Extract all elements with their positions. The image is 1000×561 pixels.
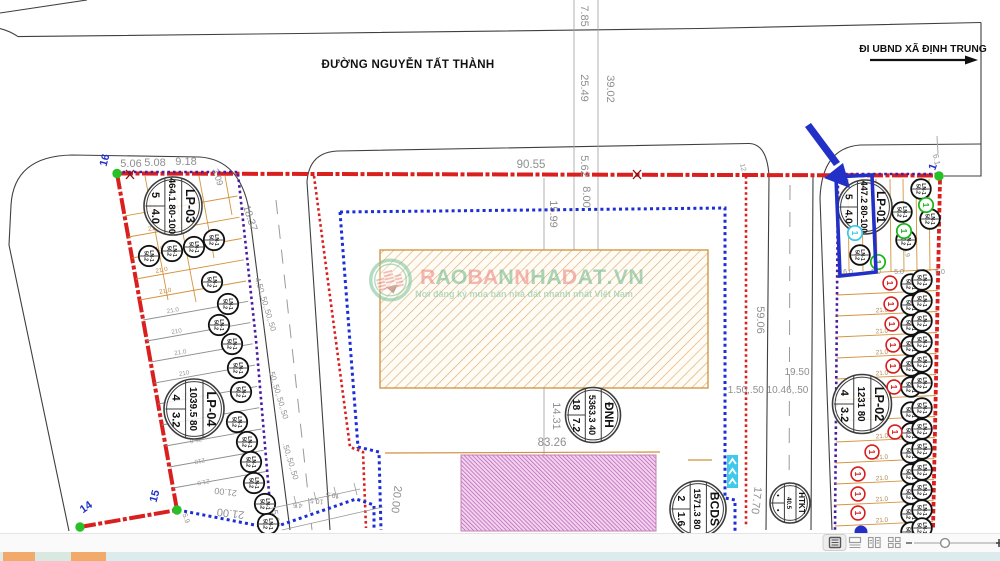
svg-text:50.2: 50.2 [915, 523, 921, 533]
svg-text:1: 1 [886, 302, 896, 307]
svg-text:HTKT: HTKT [797, 492, 806, 514]
svg-text:A: A [546, 265, 562, 289]
svg-text:H: H [530, 265, 546, 289]
svg-text:5363.3 40: 5363.3 40 [587, 395, 597, 435]
svg-text:1: 1 [899, 229, 909, 234]
svg-text:21.0: 21.0 [876, 433, 889, 441]
svg-text:4.0: 4.0 [149, 209, 161, 224]
svg-text:LP-02: LP-02 [872, 387, 887, 422]
svg-text:50.2: 50.2 [895, 207, 901, 217]
svg-text:1: 1 [921, 203, 931, 208]
svg-text:ĐƯỜNG NGUYỄN TẤT THÀNH: ĐƯỜNG NGUYỄN TẤT THÀNH [322, 58, 495, 71]
svg-text:9.18: 9.18 [175, 156, 196, 168]
svg-text:50.2: 50.2 [207, 235, 213, 245]
svg-text:50.2: 50.2 [904, 279, 910, 289]
svg-text:50.2: 50.2 [904, 320, 910, 330]
svg-text:21.0: 21.0 [876, 370, 889, 378]
svg-text:3.2: 3.2 [169, 412, 181, 428]
svg-text:5: 5 [149, 192, 161, 198]
svg-text:BCDS: BCDS [707, 492, 721, 526]
svg-text:O: O [451, 265, 468, 289]
svg-text:N: N [498, 265, 514, 289]
svg-text:50.2: 50.2 [904, 509, 910, 519]
svg-text:A: A [435, 265, 451, 289]
svg-text:50.2: 50.2 [915, 296, 921, 306]
svg-text:50.2: 50.2 [225, 339, 231, 349]
svg-text:50.2: 50.2 [231, 363, 237, 373]
svg-text:ĐNH: ĐNH [602, 402, 616, 428]
svg-text:1039.5 80: 1039.5 80 [187, 387, 198, 431]
svg-text:21.0: 21.0 [876, 349, 889, 357]
svg-text:1: 1 [853, 492, 863, 497]
svg-text:1.6: 1.6 [675, 512, 687, 527]
svg-text:5.0: 5.0 [894, 269, 904, 276]
svg-text:4: 4 [838, 390, 850, 397]
svg-text:50.2: 50.2 [221, 299, 227, 309]
svg-text:50.2: 50.2 [915, 444, 921, 454]
svg-text:15.99: 15.99 [547, 200, 559, 228]
svg-text:50.2: 50.2 [258, 499, 264, 509]
svg-text:A: A [578, 265, 594, 289]
svg-text:50.2: 50.2 [904, 382, 910, 392]
svg-text:50.2: 50.2 [915, 275, 921, 285]
svg-text:464.1 80-100: 464.1 80-100 [166, 178, 177, 234]
svg-text:T: T [593, 265, 606, 289]
svg-text:1: 1 [890, 430, 900, 435]
svg-text:7.2: 7.2 [570, 418, 581, 433]
svg-text:Nơi đăng ký mua bán nhà đất nh: Nơi đăng ký mua bán nhà đất nhanh nhất V… [415, 289, 633, 299]
svg-text:1: 1 [867, 450, 877, 455]
svg-text:50.2: 50.2 [234, 387, 240, 397]
svg-text:1: 1 [887, 322, 897, 327]
svg-text:D: D [562, 265, 578, 289]
svg-text:50.2: 50.2 [904, 469, 910, 479]
svg-text:ĐI UBND XÃ ĐỊNH TRUNG: ĐI UBND XÃ ĐỊNH TRUNG [859, 42, 987, 55]
svg-text:50.2: 50.2 [187, 242, 193, 252]
svg-text:18: 18 [570, 399, 581, 411]
svg-text:B: B [467, 265, 483, 289]
svg-text:A: A [483, 265, 499, 289]
svg-text:4: 4 [169, 394, 181, 401]
svg-text:LP-04: LP-04 [204, 391, 219, 427]
svg-text:1: 1 [888, 343, 898, 348]
svg-text:50.2: 50.2 [923, 214, 929, 224]
svg-text:50.2: 50.2 [904, 448, 910, 458]
svg-text:50.2: 50.2 [904, 361, 910, 371]
svg-text:1: 1 [888, 364, 898, 369]
svg-text:1: 1 [885, 281, 895, 286]
svg-text:50.2: 50.2 [247, 478, 253, 488]
svg-text:21.0: 21.0 [876, 475, 889, 483]
svg-text:39.02: 39.02 [604, 75, 616, 103]
svg-text:50.2: 50.2 [205, 277, 211, 287]
svg-text:59.06: 59.06 [754, 306, 766, 334]
svg-text:5.06: 5.06 [120, 158, 141, 170]
svg-text:5: 5 [843, 194, 854, 200]
svg-text:50.2: 50.2 [904, 341, 910, 351]
svg-text:50.2: 50.2 [914, 184, 920, 194]
svg-text:90.55: 90.55 [517, 159, 546, 171]
svg-text:50.2: 50.2 [915, 424, 921, 434]
svg-text:1: 1 [850, 231, 860, 236]
svg-text:2: 2 [675, 495, 687, 501]
svg-text:N: N [628, 265, 644, 289]
svg-text:50.2: 50.2 [915, 403, 921, 413]
svg-text:50.2: 50.2 [904, 428, 910, 438]
svg-text:50.2: 50.2 [261, 519, 267, 529]
svg-text:1: 1 [889, 385, 899, 390]
svg-text:50.2: 50.2 [915, 485, 921, 495]
svg-text:50.2: 50.2 [165, 246, 171, 256]
svg-text:50.2: 50.2 [230, 417, 236, 427]
svg-text:50.2: 50.2 [142, 251, 148, 261]
svg-text:50.2: 50.2 [904, 489, 910, 499]
svg-text:447.2 80-100: 447.2 80-100 [859, 181, 869, 234]
svg-text:50.2: 50.2 [915, 378, 921, 388]
svg-text:5.08: 5.08 [144, 157, 165, 169]
svg-text:1571.3 80: 1571.3 80 [692, 488, 702, 529]
svg-text:5.0: 5.0 [935, 269, 945, 276]
svg-text:R: R [420, 265, 436, 289]
svg-text:50.2: 50.2 [853, 250, 859, 260]
svg-text:V: V [614, 265, 629, 289]
svg-text:50.2: 50.2 [915, 316, 921, 326]
svg-text:50.2: 50.2 [244, 457, 250, 467]
svg-text:7.85: 7.85 [578, 5, 590, 26]
svg-text:LP-03: LP-03 [183, 189, 197, 223]
svg-text:1231 80: 1231 80 [855, 386, 866, 421]
svg-text:.: . [607, 265, 613, 289]
svg-text:4.0: 4.0 [843, 210, 854, 224]
svg-text:50.2: 50.2 [915, 465, 921, 475]
svg-text:50.2: 50.2 [904, 407, 910, 417]
svg-text:LP-01: LP-01 [874, 191, 887, 223]
svg-text:83.26: 83.26 [538, 437, 567, 449]
svg-text:5.62: 5.62 [578, 155, 590, 176]
svg-text:3.2: 3.2 [838, 407, 850, 422]
svg-text:50.2: 50.2 [915, 337, 921, 347]
svg-text:8.00: 8.00 [580, 186, 592, 207]
svg-text:N: N [514, 265, 530, 289]
svg-text:21.0: 21.0 [876, 496, 889, 504]
svg-text:19.50: 19.50 [784, 367, 809, 378]
svg-text:14.31: 14.31 [550, 402, 562, 430]
svg-text:50.2: 50.2 [915, 357, 921, 367]
svg-text:40.5: 40.5 [785, 497, 792, 510]
svg-text:1: 1 [853, 472, 863, 477]
svg-text:1: 1 [853, 511, 863, 516]
svg-text:50.2: 50.2 [212, 320, 218, 330]
svg-text:1.50,.50 10.46,.50: 1.50,.50 10.46,.50 [728, 385, 809, 396]
svg-text:50.2: 50.2 [915, 505, 921, 515]
svg-text:25.49: 25.49 [578, 74, 590, 102]
svg-text:50.2: 50.2 [904, 300, 910, 310]
svg-text:21.0: 21.0 [876, 517, 889, 525]
svg-text:50.2: 50.2 [240, 437, 246, 447]
